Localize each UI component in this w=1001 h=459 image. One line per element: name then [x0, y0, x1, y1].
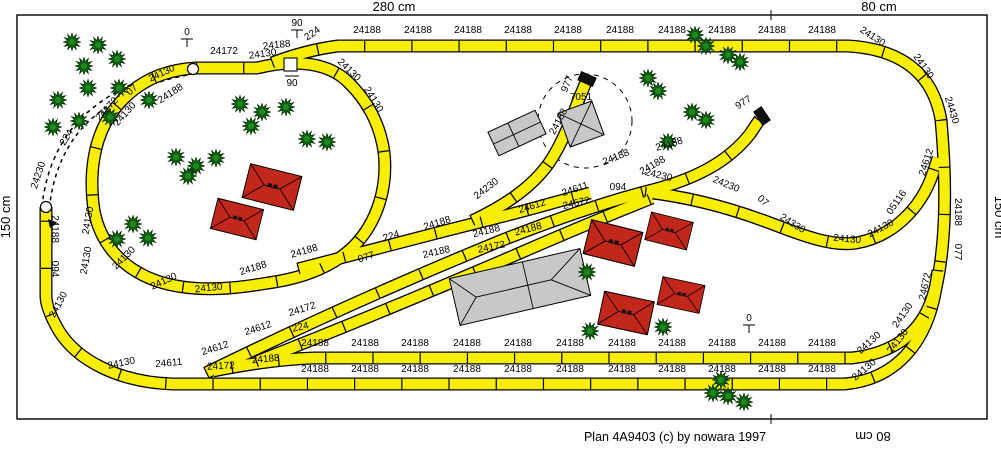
- track-piece-label: 24188: [401, 364, 429, 375]
- track-plan-svg: 280 cm 80 cm 150 cm 150 cm 80 cm: [0, 0, 1001, 459]
- track-piece-label: 24188: [606, 25, 634, 36]
- track-piece-label: 24188: [353, 25, 381, 36]
- track-piece-label: 24188: [758, 25, 786, 36]
- svg-text:90: 90: [286, 78, 298, 89]
- track-piece-label: 24188: [401, 338, 429, 349]
- track-piece-label: 24172: [210, 46, 238, 57]
- bridge-pier: [284, 58, 297, 71]
- track-piece-label: 7051: [570, 92, 593, 103]
- track-piece-label: 24188: [658, 25, 686, 36]
- plan-caption: Plan 4A9403 (c) by nowara 1997: [584, 430, 766, 444]
- track-piece-label: 24188: [453, 364, 481, 375]
- track-piece-label: 24172: [207, 360, 236, 372]
- track-piece-label: 094: [610, 182, 627, 193]
- track-piece-label: 24188: [808, 338, 836, 349]
- track-piece-label: 24188: [758, 364, 786, 375]
- track-piece-label: 24188: [554, 25, 582, 36]
- track-piece-label: 24188: [658, 364, 686, 375]
- track-piece-label: 24188: [504, 364, 532, 375]
- track-piece-label: 24188: [708, 25, 736, 36]
- track-piece-label: 24188: [404, 25, 432, 36]
- height-marker: 90: [285, 76, 299, 89]
- svg-text:0: 0: [184, 27, 190, 38]
- tunnel-portal: [41, 202, 52, 213]
- track-piece-label: 24188: [608, 364, 636, 375]
- track-piece-label: 24188: [758, 338, 786, 349]
- track-piece-label: 24188: [556, 364, 584, 375]
- svg-text:90: 90: [291, 18, 303, 29]
- track-piece-label: 24188: [301, 364, 329, 375]
- track-piece-label: 094: [49, 261, 60, 278]
- track-piece-label: 077: [952, 244, 963, 261]
- dimension-top-main: 280 cm: [373, 0, 416, 14]
- track-piece-label: 24188: [708, 338, 736, 349]
- track-piece-label: 24188: [453, 338, 481, 349]
- track-piece-label: 24188: [556, 338, 584, 349]
- track-piece-label: 24188: [952, 198, 963, 226]
- track-piece-label: 24188: [808, 25, 836, 36]
- svg-text:0: 0: [746, 313, 752, 324]
- track-piece-label: 24188: [504, 25, 532, 36]
- track-piece-label: 24188: [658, 338, 686, 349]
- dimension-left: 150 cm: [0, 196, 13, 239]
- track-piece-label: 24188: [301, 338, 329, 349]
- track-piece-label: 24188: [49, 215, 60, 243]
- dimension-right: 150 cm: [992, 196, 1001, 239]
- track-piece-label: 24188: [351, 338, 379, 349]
- track-plan-canvas: 280 cm 80 cm 150 cm 150 cm 80 cm: [0, 0, 1001, 459]
- track-piece-label: 24188: [351, 364, 379, 375]
- track-piece-label: 24188: [504, 338, 532, 349]
- track-piece-label: 24188: [608, 338, 636, 349]
- tunnel-portal: [188, 64, 199, 75]
- track-piece-label: 24188: [708, 364, 736, 375]
- dimension-bottom-right: 80 cm: [855, 429, 890, 444]
- track-piece-label: 24188: [808, 364, 836, 375]
- dimension-top-right: 80 cm: [861, 0, 896, 14]
- track-piece-label: 24188: [454, 25, 482, 36]
